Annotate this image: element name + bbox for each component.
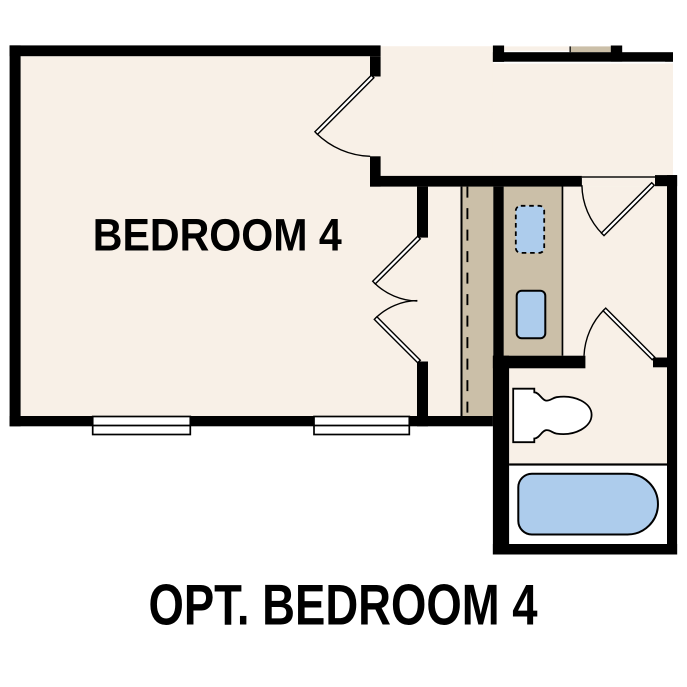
svg-text:BEDROOM 4: BEDROOM 4: [93, 210, 343, 261]
svg-text:OPT. BEDROOM 4: OPT. BEDROOM 4: [149, 574, 538, 638]
